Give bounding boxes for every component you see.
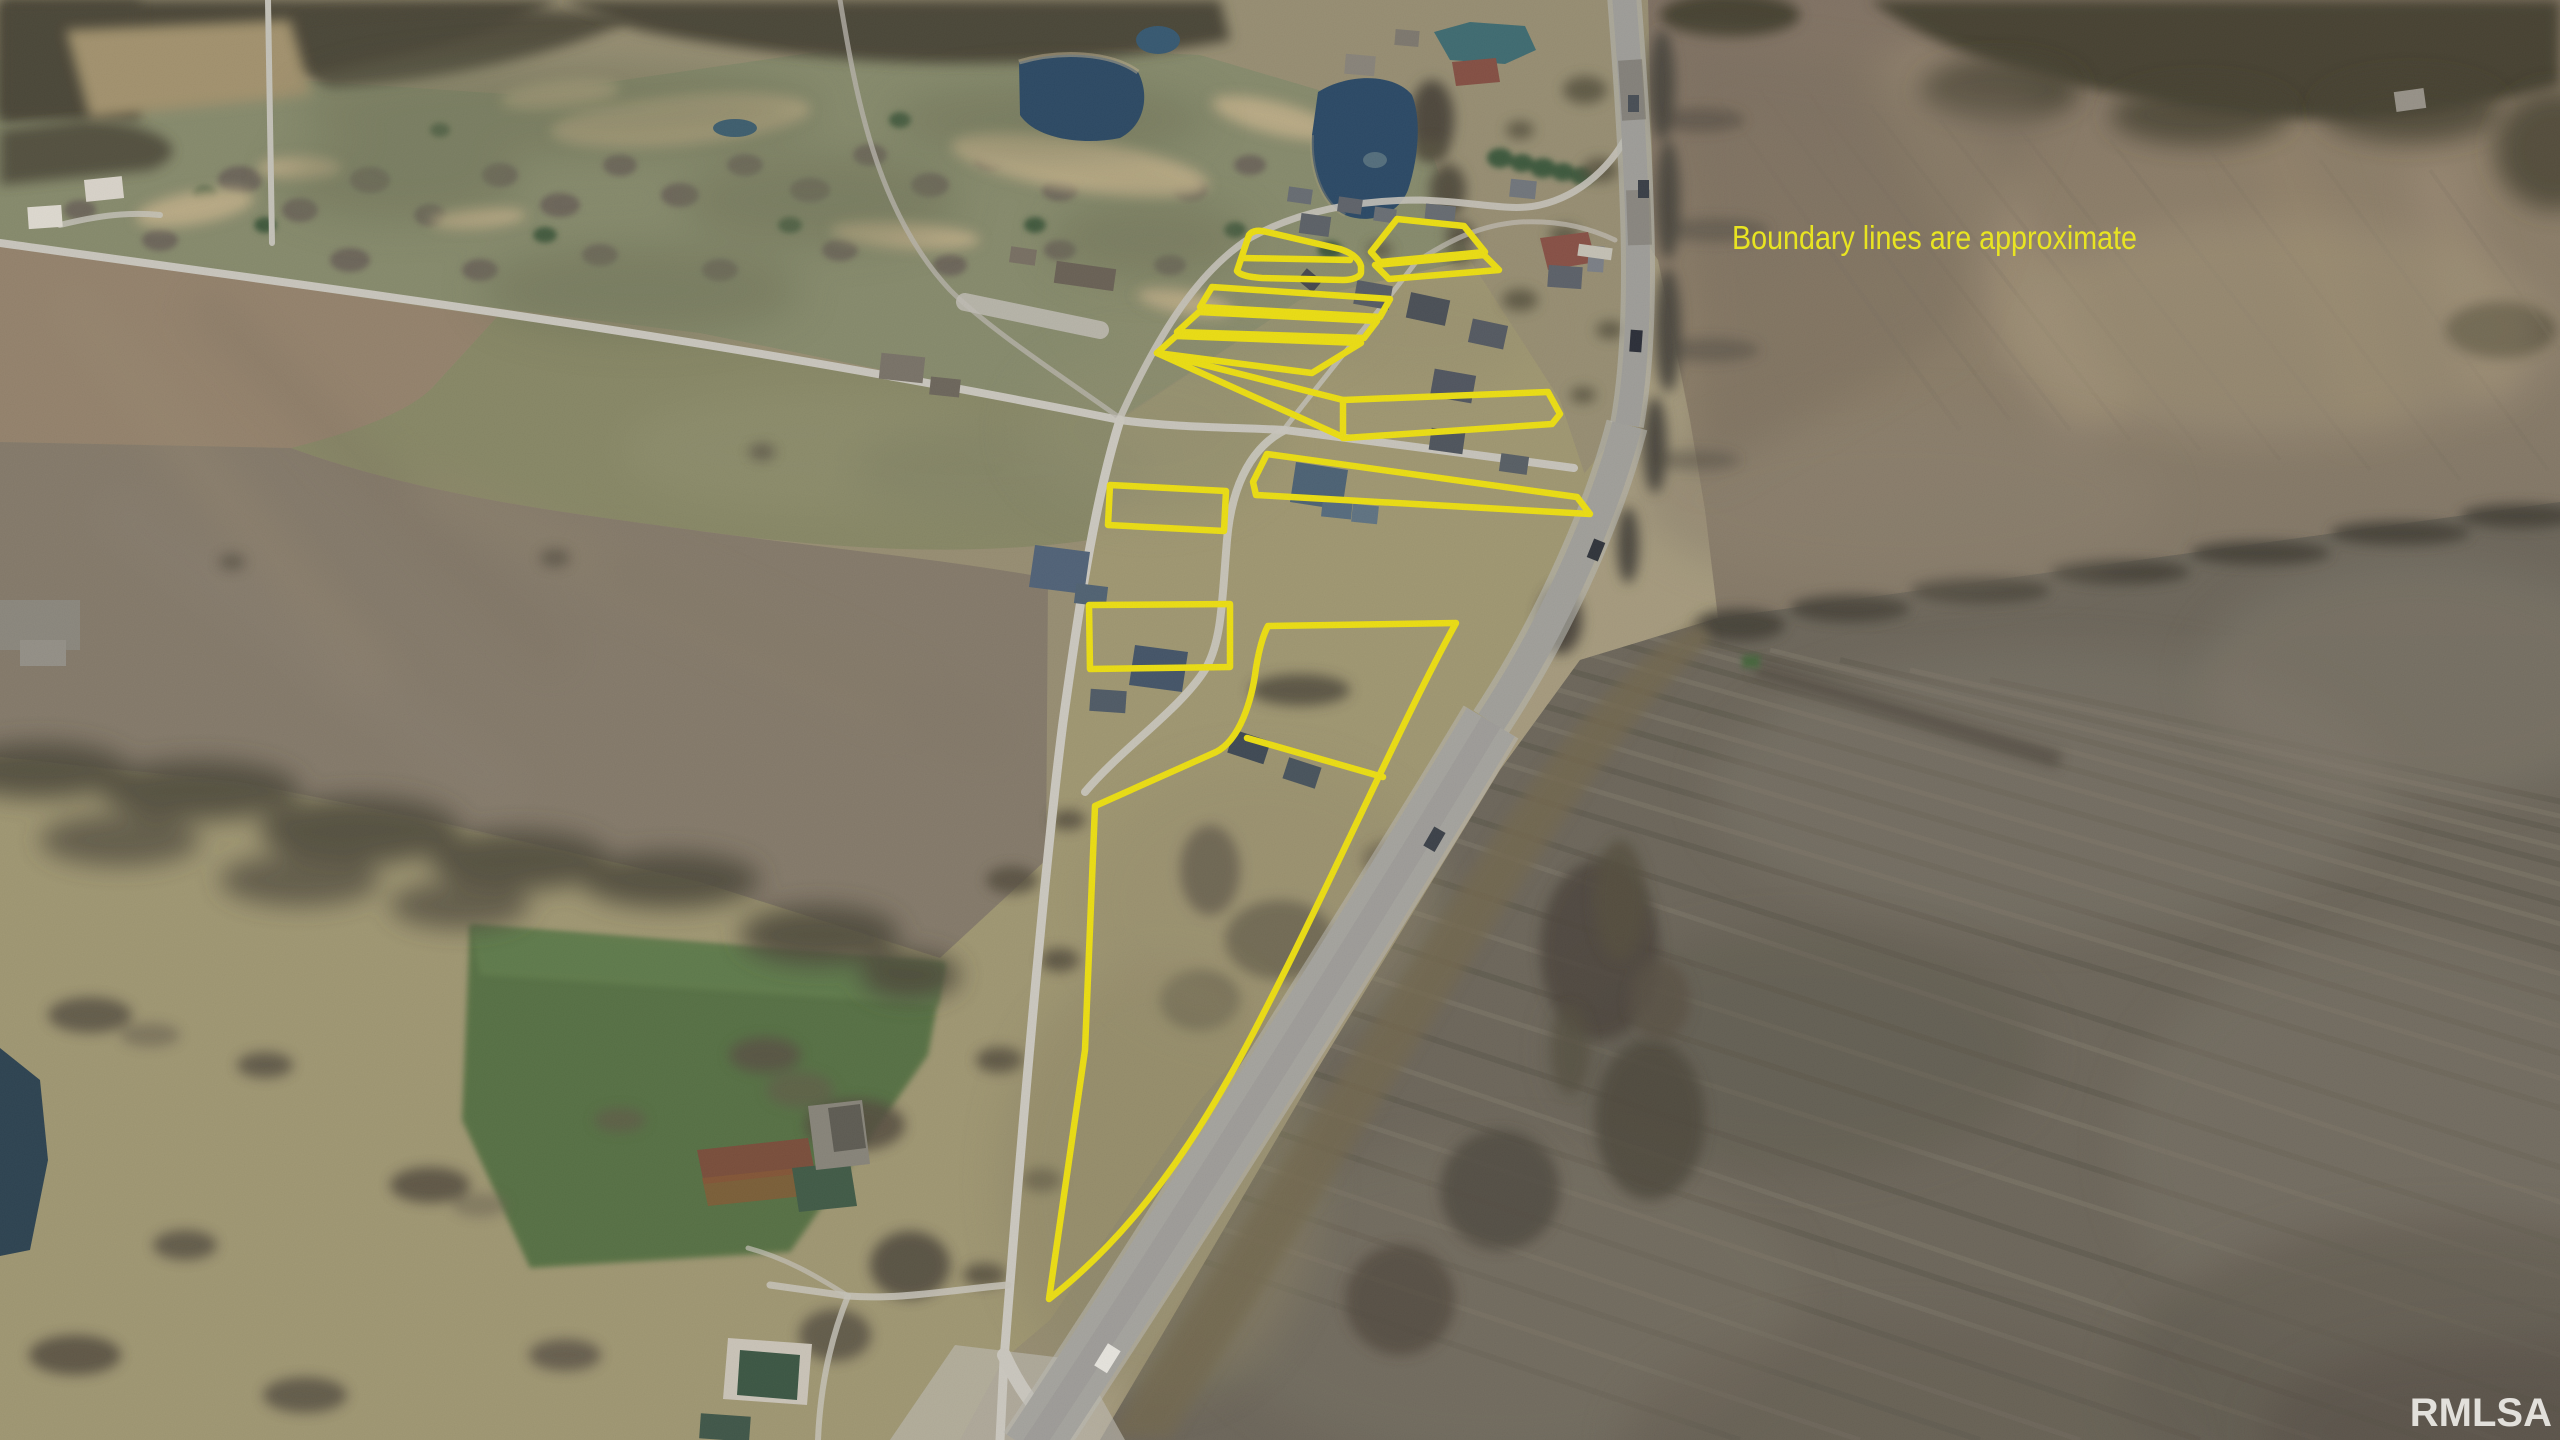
svg-text:Boundary lines are approximate: Boundary lines are approximate <box>1732 219 2137 256</box>
svg-text:RMLSA: RMLSA <box>2410 1391 2552 1435</box>
